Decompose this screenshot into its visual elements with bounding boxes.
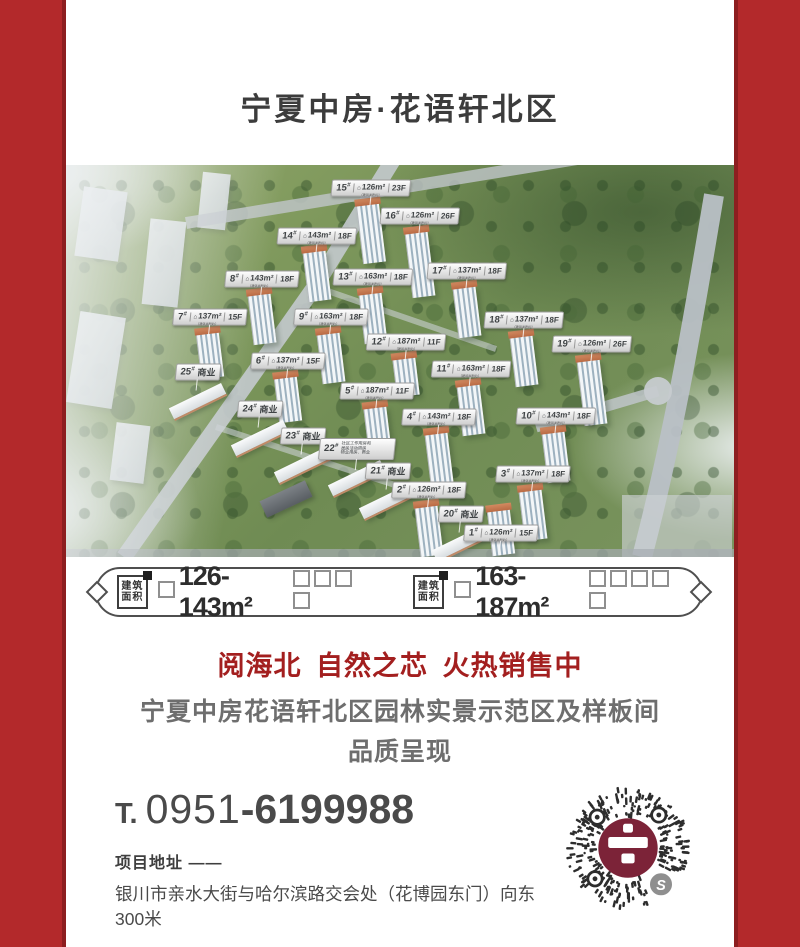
- area-caption: （建筑面积约）: [486, 539, 508, 543]
- building-area: ⌂143m²（建筑面积约）: [302, 231, 331, 240]
- building-label-3: 3#⌂137m²（建筑面积约）18F: [495, 465, 571, 482]
- building-number: 3#: [500, 468, 510, 479]
- diamond-end-left-icon: [86, 581, 109, 604]
- house-icon: ⌂: [457, 366, 461, 372]
- qr-code: S: [562, 782, 694, 914]
- address-label: 项目地址 ——: [115, 849, 562, 873]
- area-caption: （建筑面积约）: [414, 496, 436, 500]
- building-number: 11#: [436, 363, 451, 374]
- building-floors: 18F: [280, 274, 295, 283]
- building-area: ⌂137m²（建筑面积约）: [516, 469, 545, 478]
- building-number: 8#: [230, 273, 240, 284]
- house-icon: ⌂: [357, 186, 361, 192]
- building-number: 4#: [406, 411, 416, 422]
- building-floors: 26F: [440, 211, 455, 220]
- building-label-20: 20#商业: [437, 505, 484, 522]
- aerial-photo: 15#⌂126m²（建筑面积约）23F16#⌂126m²（建筑面积约）26F14…: [66, 165, 734, 557]
- area-spec-bar: 建筑 面积 126-143m² 建筑 面积 163-187m²: [95, 567, 703, 617]
- area-caption: （建筑面积约）: [408, 222, 430, 226]
- building-label-13: 13#⌂163m²（建筑面积约）18F: [333, 269, 414, 286]
- area-caption: （建筑面积约）: [196, 323, 218, 327]
- building-label-24: 24#商业: [237, 400, 284, 417]
- promo-line-2: 品质呈现: [66, 732, 734, 768]
- building-number: 13#: [338, 272, 353, 283]
- building-number: 20#: [443, 508, 458, 519]
- house-icon: ⌂: [392, 340, 396, 346]
- building-label-7: 7#⌂137m²（建筑面积约）15F: [172, 309, 248, 326]
- building-label-12: 12#⌂187m²（建筑面积约）11F: [366, 334, 447, 351]
- building-label-10: 10#⌂143m²（建筑面积约）18F: [516, 407, 597, 424]
- floor-area-stamp-icon: 建筑 面积: [117, 575, 148, 609]
- house-icon: ⌂: [516, 471, 520, 477]
- building-area: ⌂143m²（建筑面积约）: [422, 413, 451, 422]
- diamond-end-right-icon: [690, 581, 713, 604]
- area-caption: （建筑面积约）: [274, 367, 296, 371]
- building-floors: 15F: [306, 357, 321, 366]
- building-floors: 18F: [544, 315, 559, 324]
- placeholder-boxes: [291, 570, 366, 614]
- phone-main-number: -6199988: [241, 786, 414, 833]
- building-floors: 15F: [519, 529, 534, 538]
- building-area: ⌂143m²（建筑面积约）: [245, 274, 274, 283]
- building-number: 12#: [371, 337, 386, 348]
- building-floors: 18F: [577, 411, 592, 420]
- building-floors: 18F: [394, 273, 409, 282]
- area-caption: （建筑面积约）: [361, 283, 383, 287]
- placeholder-boxes: [452, 581, 473, 603]
- area-caption: （建筑面积约）: [394, 348, 416, 352]
- building-label-21: 21#商业: [365, 463, 412, 480]
- building-area: ⌂163m²（建筑面积约）: [359, 273, 388, 282]
- house-icon: ⌂: [302, 233, 306, 239]
- placeholder-boxes: [156, 581, 177, 603]
- area-caption: （建筑面积约）: [363, 397, 385, 401]
- commercial-label: 商业: [302, 429, 321, 442]
- building-floors: 18F: [447, 485, 462, 494]
- building-floors: 18F: [337, 231, 352, 240]
- stamp-text-2: 面积: [121, 592, 143, 603]
- building-number: 5#: [345, 386, 355, 397]
- building-number: 19#: [557, 339, 572, 350]
- mixed-use-label: 社区工作用房和居民活动用房物业用房、商业: [340, 442, 390, 456]
- zhongfang-logo: [608, 837, 648, 848]
- building-label-9: 9#⌂163m²（建筑面积约）18F: [293, 309, 369, 326]
- building-area: ⌂126m²（建筑面积约）: [484, 529, 513, 538]
- building-number: 17#: [431, 265, 446, 276]
- building-floors: 18F: [348, 313, 363, 322]
- house-icon: ⌂: [412, 487, 416, 493]
- building-number: 22#: [324, 443, 339, 454]
- house-icon: ⌂: [422, 415, 426, 421]
- building-number: 21#: [370, 466, 385, 477]
- building-label-2: 2#⌂126m²（建筑面积约）18F: [391, 481, 467, 498]
- building-label-19: 19#⌂126m²（建筑面积约）26F: [552, 336, 633, 353]
- address-text: 银川市亲水大街与哈尔滨路交会处（花博园东门）向东300米: [115, 881, 562, 931]
- building-area: ⌂126m²（建筑面积约）: [578, 340, 607, 349]
- building-number: 1#: [468, 528, 478, 539]
- spec-group-1: 建筑 面积 126-143m²: [117, 561, 365, 623]
- building-area: ⌂187m²（建筑面积约）: [361, 387, 390, 396]
- building-label-22: 22#社区工作用房和居民活动用房物业用房、商业: [318, 438, 396, 460]
- placeholder-boxes: [587, 570, 681, 614]
- building-label-6: 6#⌂137m²（建筑面积约）15F: [250, 353, 326, 370]
- house-icon: ⌂: [193, 315, 197, 321]
- building-number: 16#: [385, 210, 400, 221]
- building-area: ⌂126m²（建筑面积约）: [406, 211, 435, 220]
- building-floors: 18F: [492, 364, 507, 373]
- sales-headline: 阅海北 自然之芯 火热销售中: [66, 644, 734, 683]
- area-caption: （建筑面积约）: [512, 326, 534, 330]
- building-number: 6#: [256, 355, 266, 366]
- building-label-8: 8#⌂143m²（建筑面积约）18F: [224, 270, 300, 287]
- building-number: 25#: [180, 366, 195, 377]
- house-icon: ⌂: [361, 389, 365, 395]
- house-icon: ⌂: [406, 213, 410, 219]
- house-icon: ⌂: [453, 268, 457, 274]
- house-icon: ⌂: [359, 275, 363, 281]
- area-caption: （建筑面积约）: [248, 284, 270, 288]
- house-icon: ⌂: [314, 315, 318, 321]
- building-floors: 23F: [392, 184, 407, 193]
- building-number: 23#: [285, 430, 300, 441]
- area-caption: （建筑面积约）: [424, 423, 446, 427]
- building-floors: 11F: [395, 387, 409, 396]
- building-floors: 18F: [487, 266, 502, 275]
- building-label-25: 25#商业: [174, 363, 221, 380]
- stamp-text-1: 建筑: [121, 581, 143, 592]
- building-label-15: 15#⌂126m²（建筑面积约）23F: [331, 180, 412, 197]
- building-floors: 15F: [228, 313, 243, 322]
- area-range-1: 126-143m²: [179, 561, 289, 623]
- building-area: ⌂187m²（建筑面积约）: [392, 338, 421, 347]
- building-area: ⌂137m²（建筑面积约）: [509, 315, 538, 324]
- stamp-text-2: 面积: [418, 592, 440, 603]
- building-floors: 26F: [613, 340, 628, 349]
- house-icon: ⌂: [542, 413, 546, 419]
- house-icon: ⌂: [484, 531, 488, 537]
- commercial-label: 商业: [387, 465, 406, 478]
- building-floors: 18F: [551, 469, 566, 478]
- spec-group-2: 建筑 面积 163-187m²: [413, 561, 681, 623]
- poster-title: 宁夏中房·花语轩北区: [66, 0, 734, 129]
- building-label-11: 11#⌂163m²（建筑面积约）18F: [431, 360, 512, 377]
- building-label-4: 4#⌂143m²（建筑面积约）18F: [401, 409, 477, 426]
- svg-text:S: S: [656, 878, 666, 894]
- phone-area-code: 0951: [146, 786, 241, 833]
- area-caption: （建筑面积约）: [580, 350, 602, 354]
- building-label-1: 1#⌂126m²（建筑面积约）15F: [463, 525, 539, 542]
- building-area: ⌂143m²（建筑面积约）: [542, 411, 571, 420]
- house-icon: ⌂: [578, 342, 582, 348]
- building-area: ⌂126m²（建筑面积约）: [412, 485, 441, 494]
- poster-content: 宁夏中房·花语轩北区 15#⌂126m²（建筑面积约）23F16#⌂126m²（…: [62, 0, 738, 947]
- building-area: ⌂137m²（建筑面积约）: [193, 313, 222, 322]
- stamp-text-1: 建筑: [418, 581, 440, 592]
- building-area: ⌂137m²（建筑面积约）: [453, 266, 482, 275]
- contact-left: T. 0951 -6199988 项目地址 —— 银川市亲水大街与哈尔滨路交会处…: [115, 786, 562, 931]
- building-number: 7#: [178, 312, 188, 323]
- commercial-label: 商业: [259, 402, 278, 415]
- building-label-16: 16#⌂126m²（建筑面积约）26F: [379, 207, 460, 224]
- house-icon: ⌂: [246, 276, 250, 282]
- area-caption: （建筑面积约）: [316, 323, 338, 327]
- building-number: 24#: [242, 403, 257, 414]
- zhongfang-logo: [621, 854, 634, 864]
- building-area: ⌂126m²（建筑面积约）: [357, 184, 386, 193]
- building-floors: 18F: [457, 413, 472, 422]
- building-area: ⌂163m²（建筑面积约）: [314, 313, 343, 322]
- floor-area-stamp-icon: 建筑 面积: [413, 575, 444, 609]
- building-number: 14#: [281, 230, 296, 241]
- building-label-5: 5#⌂187m²（建筑面积约）11F: [340, 383, 416, 400]
- building-floors: 11F: [427, 338, 441, 347]
- area-caption: （建筑面积约）: [305, 241, 327, 245]
- building-number: 15#: [336, 183, 351, 194]
- commercial-label: 商业: [460, 507, 479, 520]
- building-label-18: 18#⌂137m²（建筑面积约）18F: [483, 311, 564, 328]
- house-icon: ⌂: [509, 317, 513, 323]
- building-label-17: 17#⌂137m²（建筑面积约）18F: [426, 262, 507, 279]
- building-number: 10#: [521, 410, 536, 421]
- contact-section: T. 0951 -6199988 项目地址 —— 银川市亲水大街与哈尔滨路交会处…: [115, 786, 694, 931]
- building-area: ⌂137m²（建筑面积约）: [272, 357, 301, 366]
- phone-t-label: T.: [115, 798, 138, 831]
- area-range-2: 163-187m²: [475, 561, 585, 623]
- house-icon: ⌂: [272, 359, 276, 365]
- commercial-label: 商业: [196, 365, 215, 378]
- area-caption: （建筑面积约）: [359, 194, 381, 198]
- area-caption: （建筑面积约）: [544, 422, 566, 426]
- building-number: 2#: [396, 484, 406, 495]
- building-label-14: 14#⌂143m²（建筑面积约）18F: [276, 227, 357, 244]
- phone-number: T. 0951 -6199988: [115, 786, 562, 833]
- zhongfang-logo: [623, 824, 633, 833]
- promo-line-1: 宁夏中房花语轩北区园林实景示范区及样板间: [66, 692, 734, 728]
- building-number: 18#: [488, 314, 503, 325]
- area-caption: （建筑面积约）: [455, 277, 477, 281]
- area-caption: （建筑面积约）: [518, 480, 540, 484]
- building-area: ⌂163m²（建筑面积约）: [457, 364, 486, 373]
- building-number: 9#: [298, 312, 308, 323]
- area-caption: （建筑面积约）: [459, 375, 481, 379]
